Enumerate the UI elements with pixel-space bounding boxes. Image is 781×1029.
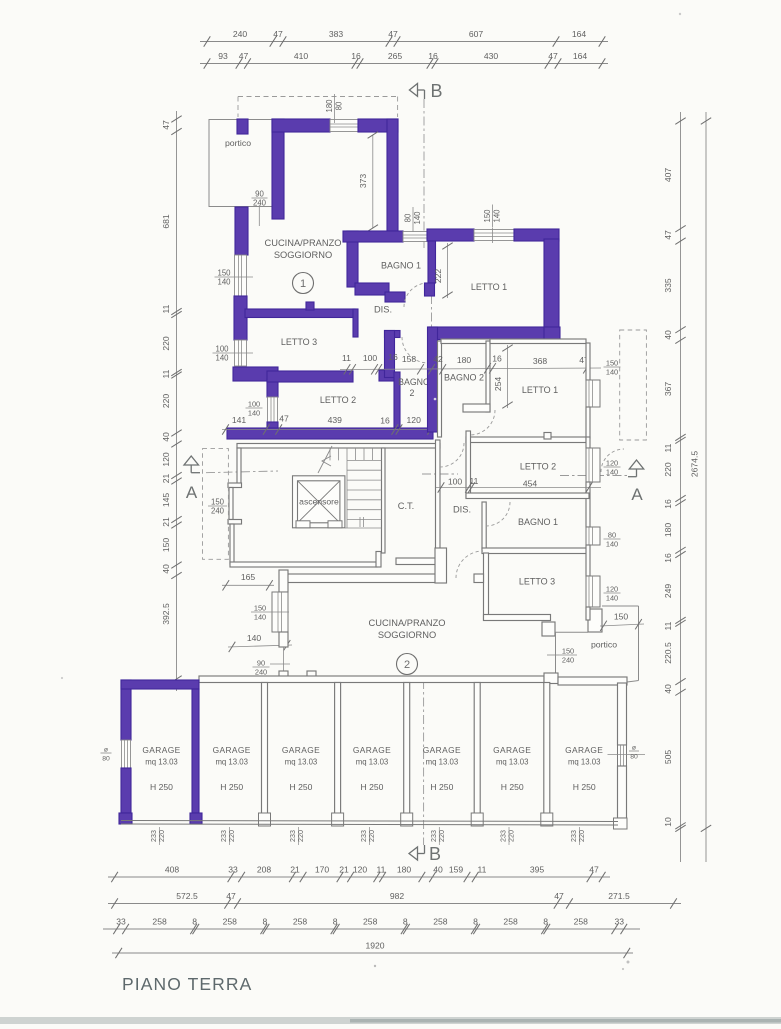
svg-text:150: 150 bbox=[483, 209, 492, 223]
svg-text:170: 170 bbox=[315, 865, 330, 875]
svg-text:249: 249 bbox=[663, 584, 673, 599]
svg-text:681: 681 bbox=[161, 214, 171, 229]
svg-text:164: 164 bbox=[572, 29, 587, 39]
svg-text:CUCINA/PRANZO: CUCINA/PRANZO bbox=[369, 618, 446, 628]
svg-text:100: 100 bbox=[448, 477, 463, 487]
svg-text:120: 120 bbox=[407, 415, 422, 425]
svg-text:505: 505 bbox=[663, 750, 673, 765]
svg-text:180: 180 bbox=[457, 355, 472, 365]
svg-text:GARAGE: GARAGE bbox=[142, 745, 180, 755]
svg-text:21: 21 bbox=[290, 865, 300, 875]
svg-text:16: 16 bbox=[388, 352, 398, 362]
svg-text:150: 150 bbox=[614, 612, 629, 622]
svg-text:140: 140 bbox=[248, 409, 260, 418]
svg-text:367: 367 bbox=[663, 382, 673, 397]
svg-text:240: 240 bbox=[562, 656, 574, 665]
svg-text:80: 80 bbox=[404, 213, 413, 222]
svg-text:80: 80 bbox=[608, 531, 616, 540]
svg-text:140: 140 bbox=[413, 211, 422, 225]
svg-text:100: 100 bbox=[363, 353, 378, 363]
svg-text:11: 11 bbox=[470, 476, 479, 486]
svg-text:1920: 1920 bbox=[365, 941, 384, 951]
svg-text:11: 11 bbox=[161, 369, 171, 378]
svg-text:2674.5: 2674.5 bbox=[690, 451, 700, 478]
svg-text:607: 607 bbox=[469, 29, 484, 39]
svg-text:BAGNO: BAGNO bbox=[398, 377, 430, 387]
svg-text:47: 47 bbox=[239, 51, 249, 61]
svg-text:H 250: H 250 bbox=[430, 782, 453, 792]
svg-text:982: 982 bbox=[390, 891, 405, 901]
svg-text:LETTO 2: LETTO 2 bbox=[320, 395, 356, 405]
svg-text:220: 220 bbox=[507, 830, 516, 842]
svg-text:CUCINA/PRANZO: CUCINA/PRANZO bbox=[265, 238, 342, 248]
svg-text:140: 140 bbox=[217, 278, 231, 287]
svg-text:21: 21 bbox=[161, 474, 171, 484]
svg-text:254: 254 bbox=[493, 377, 503, 392]
svg-text:BAGNO 2: BAGNO 2 bbox=[444, 373, 484, 383]
svg-text:C.T.: C.T. bbox=[398, 501, 415, 511]
svg-text:80: 80 bbox=[335, 101, 344, 110]
svg-text:47: 47 bbox=[589, 865, 599, 875]
svg-text:H 250: H 250 bbox=[501, 782, 524, 792]
svg-text:11: 11 bbox=[663, 443, 673, 452]
svg-text:10: 10 bbox=[663, 817, 673, 827]
svg-text:258: 258 bbox=[574, 917, 589, 927]
svg-text:392.5: 392.5 bbox=[161, 603, 171, 625]
svg-text:180: 180 bbox=[325, 99, 334, 113]
svg-text:80: 80 bbox=[630, 754, 638, 761]
svg-text:158: 158 bbox=[402, 354, 417, 364]
svg-text:368: 368 bbox=[533, 356, 548, 366]
svg-text:8: 8 bbox=[403, 917, 408, 927]
svg-text:GARAGE: GARAGE bbox=[353, 745, 391, 755]
svg-text:11: 11 bbox=[478, 865, 487, 875]
svg-text:SOGGIORNO: SOGGIORNO bbox=[378, 630, 436, 640]
svg-text:GARAGE: GARAGE bbox=[565, 745, 603, 755]
svg-text:42: 42 bbox=[433, 354, 443, 364]
svg-text:47: 47 bbox=[388, 29, 398, 39]
svg-text:mq 13.03: mq 13.03 bbox=[285, 758, 318, 767]
svg-text:240: 240 bbox=[233, 29, 248, 39]
svg-text:40: 40 bbox=[663, 684, 673, 694]
svg-text:141: 141 bbox=[232, 415, 247, 425]
svg-text:portico: portico bbox=[225, 138, 251, 148]
svg-text:410: 410 bbox=[294, 51, 309, 61]
svg-text:220: 220 bbox=[367, 830, 376, 842]
svg-text:H 250: H 250 bbox=[573, 782, 596, 792]
svg-text:LETTO 1: LETTO 1 bbox=[522, 385, 558, 395]
svg-text:1: 1 bbox=[300, 278, 306, 290]
svg-text:A: A bbox=[186, 483, 198, 502]
svg-text:240: 240 bbox=[211, 507, 225, 516]
svg-text:408: 408 bbox=[165, 865, 180, 875]
svg-text:33: 33 bbox=[615, 917, 625, 927]
svg-text:150: 150 bbox=[211, 498, 225, 507]
svg-text:11: 11 bbox=[377, 865, 386, 875]
svg-text:11: 11 bbox=[342, 353, 351, 363]
svg-text:140: 140 bbox=[606, 368, 618, 377]
svg-text:LETTO 3: LETTO 3 bbox=[519, 577, 555, 587]
svg-text:A: A bbox=[631, 485, 643, 504]
svg-text:140: 140 bbox=[493, 209, 502, 223]
svg-text:mq 13.03: mq 13.03 bbox=[426, 758, 459, 767]
svg-text:16: 16 bbox=[663, 553, 673, 563]
svg-text:mq 13.03: mq 13.03 bbox=[215, 758, 248, 767]
svg-text:180: 180 bbox=[397, 865, 412, 875]
svg-text:150: 150 bbox=[254, 604, 266, 613]
svg-text:mq 13.03: mq 13.03 bbox=[568, 758, 601, 767]
svg-text:47: 47 bbox=[548, 51, 558, 61]
svg-text:47: 47 bbox=[226, 891, 236, 901]
svg-text:145: 145 bbox=[161, 493, 171, 508]
svg-text:8: 8 bbox=[192, 917, 197, 927]
svg-text:ø: ø bbox=[632, 745, 636, 752]
svg-text:120: 120 bbox=[606, 459, 618, 468]
svg-text:220: 220 bbox=[437, 830, 446, 842]
svg-text:8: 8 bbox=[333, 917, 338, 927]
svg-text:220: 220 bbox=[161, 336, 171, 351]
svg-text:SOGGIORNO: SOGGIORNO bbox=[274, 250, 332, 260]
svg-text:16: 16 bbox=[380, 416, 390, 426]
svg-text:430: 430 bbox=[484, 51, 499, 61]
svg-text:100: 100 bbox=[248, 400, 260, 409]
svg-text:140: 140 bbox=[247, 633, 262, 643]
svg-text:140: 140 bbox=[606, 468, 618, 477]
svg-text:271.5: 271.5 bbox=[608, 891, 630, 901]
svg-text:90: 90 bbox=[255, 190, 264, 199]
svg-text:40: 40 bbox=[433, 865, 443, 875]
svg-text:150: 150 bbox=[217, 269, 231, 278]
svg-text:DIS.: DIS. bbox=[374, 305, 392, 315]
svg-text:H 250: H 250 bbox=[290, 782, 313, 792]
svg-text:572.5: 572.5 bbox=[176, 891, 198, 901]
svg-text:165: 165 bbox=[241, 572, 256, 582]
svg-text:140: 140 bbox=[215, 354, 229, 363]
svg-text:222: 222 bbox=[433, 269, 443, 284]
svg-text:258: 258 bbox=[152, 917, 167, 927]
svg-text:258: 258 bbox=[293, 917, 308, 927]
svg-text:47: 47 bbox=[554, 891, 564, 901]
svg-text:21: 21 bbox=[339, 865, 349, 875]
svg-text:47: 47 bbox=[279, 414, 289, 424]
svg-text:LETTO 1: LETTO 1 bbox=[471, 282, 507, 292]
svg-text:265: 265 bbox=[388, 51, 403, 61]
svg-text:220: 220 bbox=[227, 830, 236, 842]
svg-text:140: 140 bbox=[606, 540, 618, 549]
svg-text:240: 240 bbox=[255, 668, 267, 677]
svg-text:383: 383 bbox=[329, 29, 344, 39]
svg-text:47: 47 bbox=[273, 29, 283, 39]
svg-text:ø: ø bbox=[104, 747, 108, 754]
svg-text:373: 373 bbox=[358, 174, 368, 189]
svg-text:mq 13.03: mq 13.03 bbox=[145, 758, 178, 767]
svg-text:220: 220 bbox=[663, 462, 673, 477]
svg-text:395: 395 bbox=[530, 865, 545, 875]
svg-text:mq 13.03: mq 13.03 bbox=[496, 758, 529, 767]
svg-text:258: 258 bbox=[433, 917, 448, 927]
svg-text:40: 40 bbox=[161, 432, 171, 442]
svg-text:BAGNO 1: BAGNO 1 bbox=[518, 517, 558, 527]
svg-text:240: 240 bbox=[253, 199, 267, 208]
svg-text:GARAGE: GARAGE bbox=[493, 745, 531, 755]
svg-text:LETTO 2: LETTO 2 bbox=[520, 462, 556, 472]
svg-text:DIS.: DIS. bbox=[453, 505, 471, 515]
svg-text:8: 8 bbox=[543, 917, 548, 927]
svg-text:16: 16 bbox=[663, 499, 673, 509]
svg-text:2: 2 bbox=[404, 659, 410, 671]
svg-text:439: 439 bbox=[328, 415, 343, 425]
svg-text:BAGNO 1: BAGNO 1 bbox=[381, 261, 421, 271]
svg-text:H 250: H 250 bbox=[150, 782, 173, 792]
svg-text:8: 8 bbox=[473, 917, 478, 927]
svg-text:21: 21 bbox=[161, 517, 171, 527]
svg-text:220.5: 220.5 bbox=[663, 642, 673, 664]
svg-text:93: 93 bbox=[218, 51, 228, 61]
svg-text:GARAGE: GARAGE bbox=[423, 745, 461, 755]
svg-text:407: 407 bbox=[663, 168, 673, 183]
svg-text:150: 150 bbox=[562, 647, 574, 656]
svg-text:GARAGE: GARAGE bbox=[213, 745, 251, 755]
svg-text:220: 220 bbox=[296, 830, 305, 842]
svg-text:H 250: H 250 bbox=[220, 782, 243, 792]
svg-text:258: 258 bbox=[363, 917, 378, 927]
svg-text:H 250: H 250 bbox=[361, 782, 384, 792]
svg-text:120: 120 bbox=[353, 865, 368, 875]
svg-text:258: 258 bbox=[503, 917, 518, 927]
svg-text:454: 454 bbox=[523, 479, 538, 489]
svg-text:LETTO 3: LETTO 3 bbox=[281, 337, 317, 347]
svg-text:140: 140 bbox=[606, 594, 618, 603]
svg-text:90: 90 bbox=[257, 659, 265, 668]
svg-text:33: 33 bbox=[228, 865, 238, 875]
svg-text:40: 40 bbox=[161, 564, 171, 574]
svg-text:11: 11 bbox=[161, 304, 171, 313]
svg-text:B: B bbox=[430, 81, 442, 101]
svg-text:mq 13.03: mq 13.03 bbox=[356, 758, 389, 767]
svg-text:150: 150 bbox=[606, 359, 618, 368]
svg-text:150: 150 bbox=[161, 538, 171, 553]
svg-text:220: 220 bbox=[157, 830, 166, 842]
svg-text:ascensore: ascensore bbox=[299, 497, 339, 507]
svg-text:208: 208 bbox=[257, 865, 272, 875]
svg-text:258: 258 bbox=[223, 917, 238, 927]
svg-text:portico: portico bbox=[591, 640, 617, 650]
svg-text:8: 8 bbox=[263, 917, 268, 927]
svg-text:B: B bbox=[429, 844, 441, 864]
svg-text:47: 47 bbox=[161, 120, 171, 130]
svg-text:16: 16 bbox=[428, 51, 438, 61]
svg-text:120: 120 bbox=[606, 585, 618, 594]
svg-text:GARAGE: GARAGE bbox=[282, 745, 320, 755]
svg-text:47: 47 bbox=[663, 230, 673, 240]
svg-text:220: 220 bbox=[577, 830, 586, 842]
svg-text:180: 180 bbox=[663, 523, 673, 538]
svg-text:33: 33 bbox=[116, 917, 126, 927]
svg-text:11: 11 bbox=[663, 621, 673, 630]
svg-text:335: 335 bbox=[663, 278, 673, 293]
svg-text:2: 2 bbox=[410, 388, 415, 398]
svg-text:140: 140 bbox=[254, 613, 266, 622]
svg-text:100: 100 bbox=[215, 345, 229, 354]
svg-text:PIANO TERRA: PIANO TERRA bbox=[122, 974, 252, 994]
svg-text:164: 164 bbox=[573, 51, 588, 61]
svg-text:120: 120 bbox=[161, 452, 171, 467]
svg-text:220: 220 bbox=[161, 394, 171, 409]
svg-text:16: 16 bbox=[492, 354, 502, 364]
svg-text:159: 159 bbox=[449, 865, 464, 875]
svg-text:16: 16 bbox=[351, 51, 361, 61]
svg-text:40: 40 bbox=[663, 330, 673, 340]
svg-text:80: 80 bbox=[102, 756, 110, 763]
